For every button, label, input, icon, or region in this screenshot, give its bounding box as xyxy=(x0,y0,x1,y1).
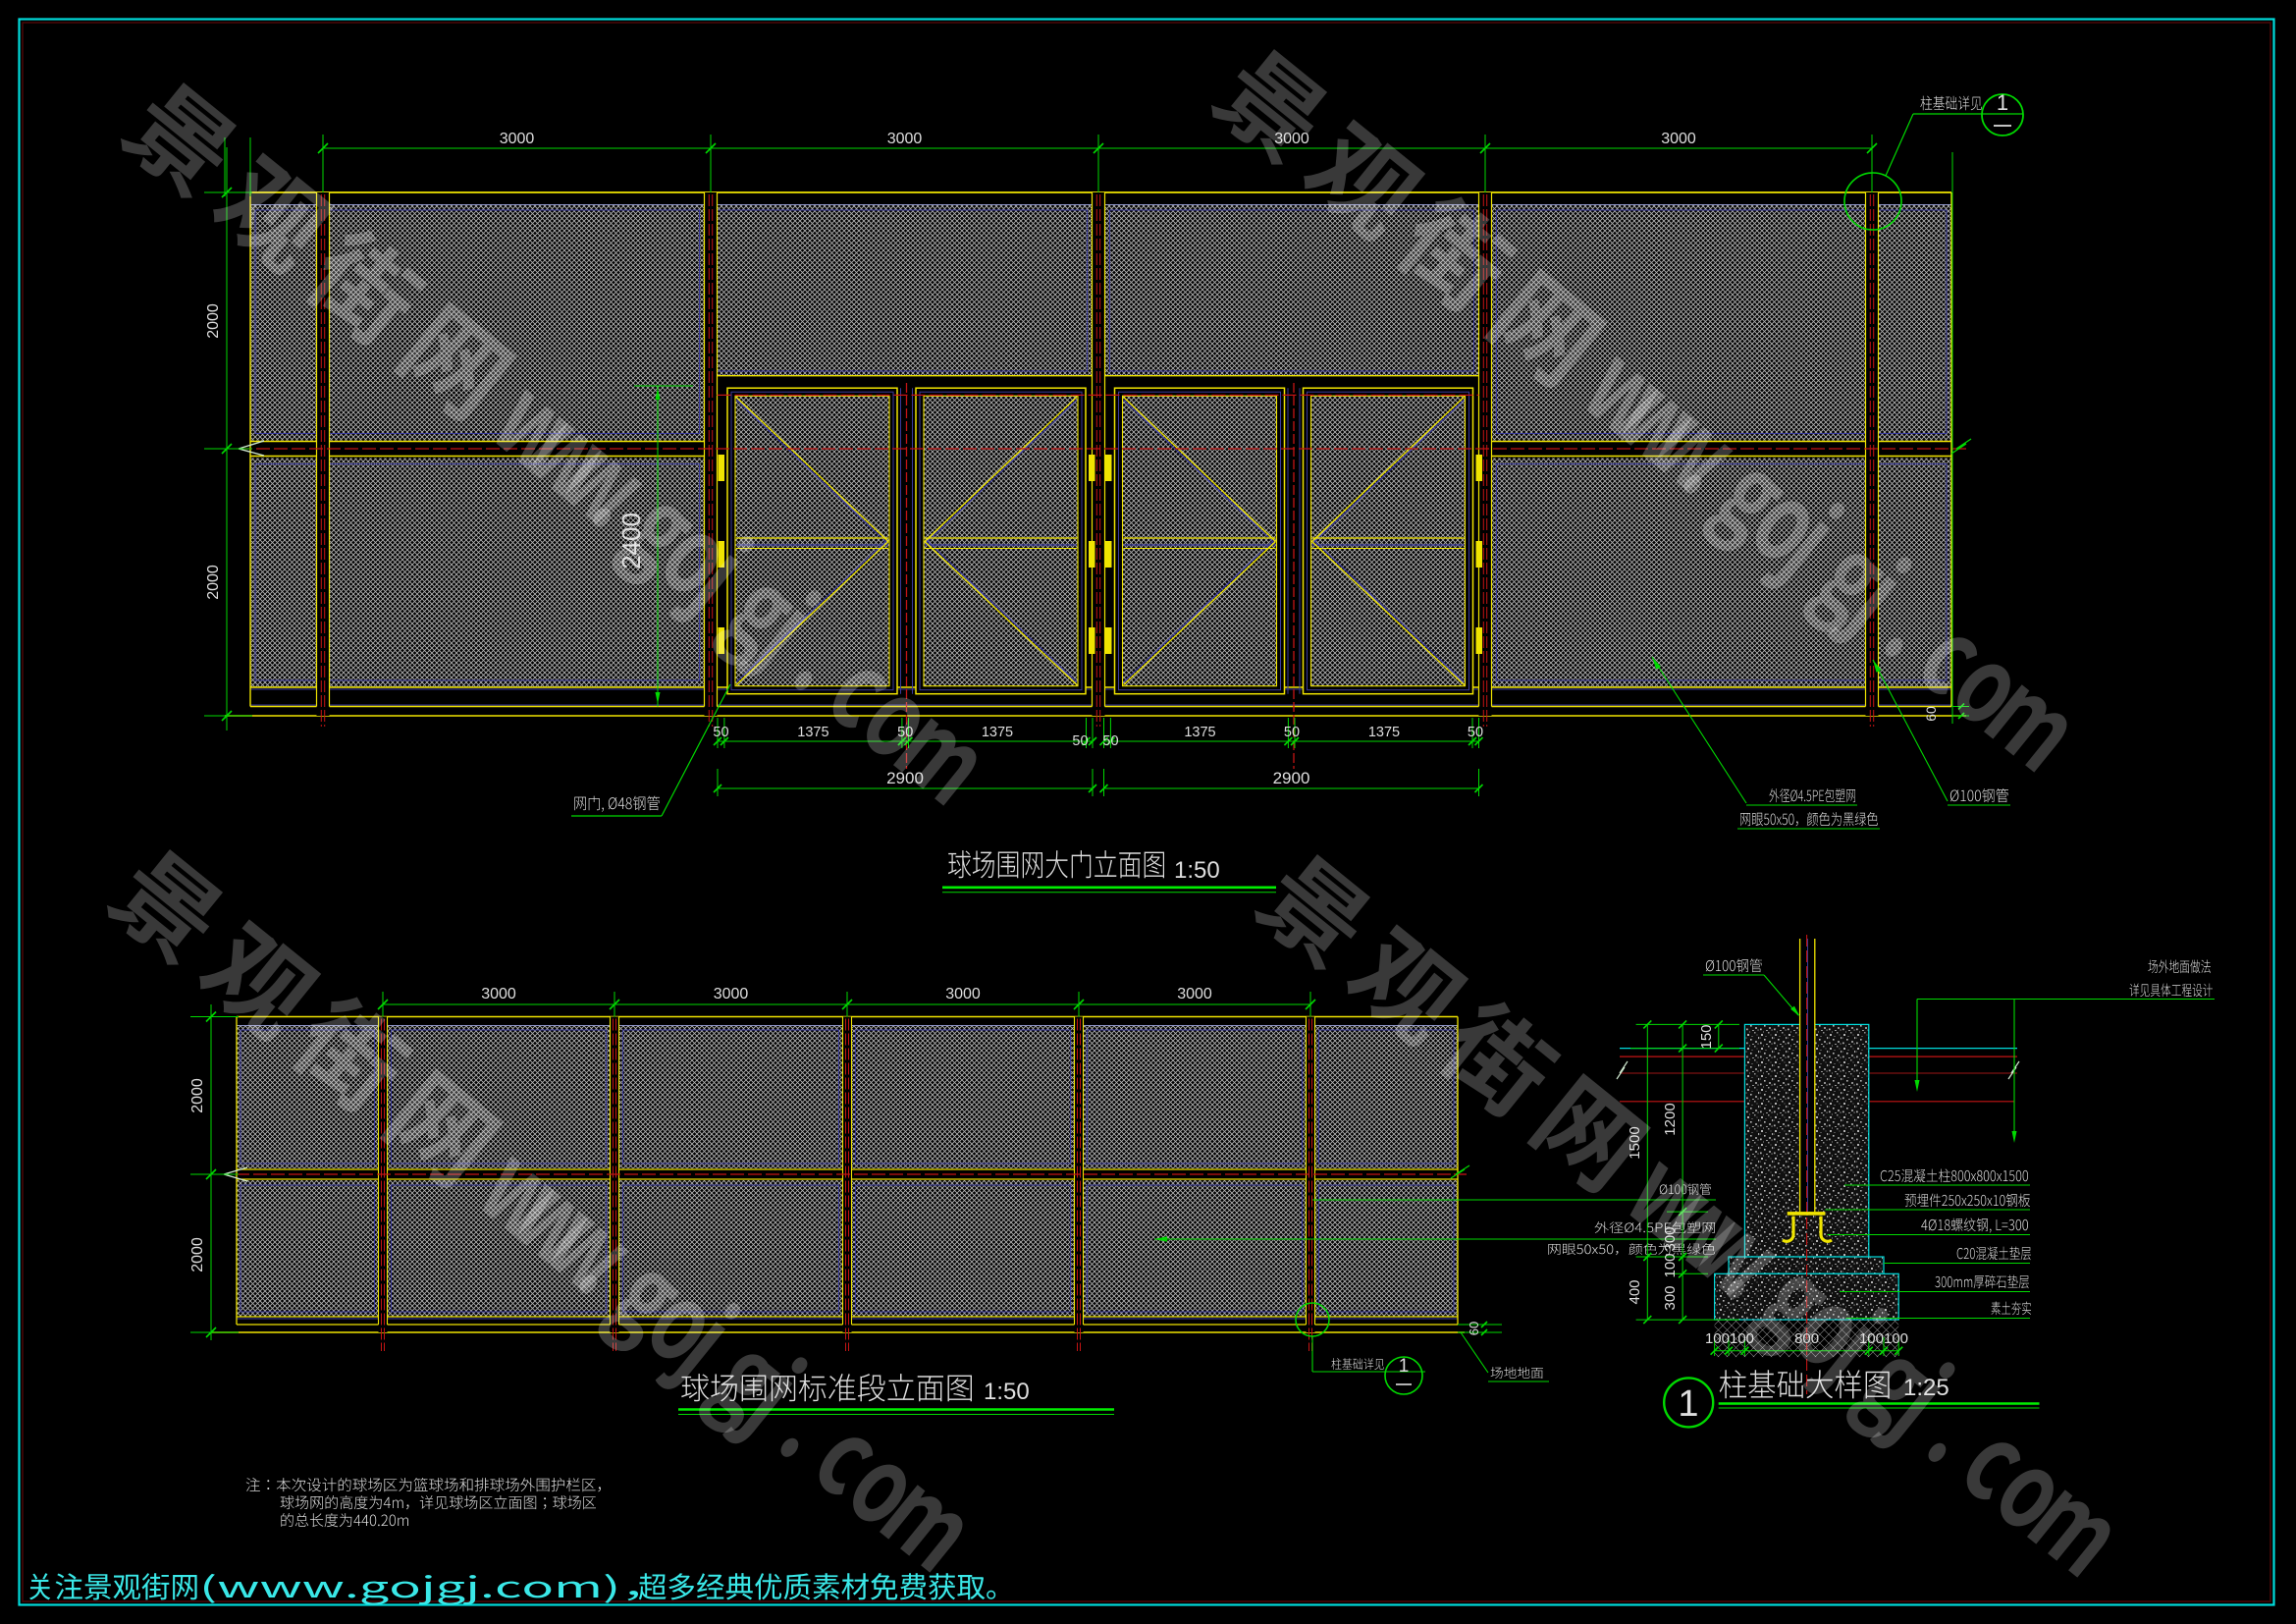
svg-text:1375: 1375 xyxy=(982,725,1013,740)
svg-text:1: 1 xyxy=(1678,1383,1698,1425)
svg-text:1375: 1375 xyxy=(1368,725,1400,740)
svg-text:3000: 3000 xyxy=(481,986,516,1002)
svg-text:60: 60 xyxy=(1923,706,1939,722)
svg-text:3000: 3000 xyxy=(945,986,981,1002)
svg-text:100: 100 xyxy=(1662,1253,1679,1277)
svg-text:1:50: 1:50 xyxy=(1174,857,1220,884)
svg-text:2000: 2000 xyxy=(205,565,222,600)
svg-text:1:50: 1:50 xyxy=(984,1379,1030,1405)
svg-text:3000: 3000 xyxy=(887,131,923,147)
svg-text:3000: 3000 xyxy=(1177,986,1212,1002)
svg-text:2000: 2000 xyxy=(189,1237,206,1272)
svg-text:1375: 1375 xyxy=(1184,725,1215,740)
svg-text:300: 300 xyxy=(1662,1285,1679,1310)
svg-text:1: 1 xyxy=(1399,1356,1410,1377)
svg-text:60: 60 xyxy=(1467,1322,1481,1335)
svg-text:3000: 3000 xyxy=(1661,131,1696,147)
svg-text:150: 150 xyxy=(1698,1024,1715,1049)
svg-text:400: 400 xyxy=(1627,1279,1643,1304)
svg-text:50: 50 xyxy=(1102,733,1118,749)
svg-text:3000: 3000 xyxy=(714,986,749,1002)
svg-text:1200: 1200 xyxy=(1662,1103,1679,1135)
svg-text:50: 50 xyxy=(1284,725,1300,740)
svg-text:50: 50 xyxy=(1468,725,1483,740)
svg-text:50: 50 xyxy=(1072,733,1088,749)
svg-text:2000: 2000 xyxy=(205,303,222,339)
svg-text:3000: 3000 xyxy=(500,131,535,147)
svg-text:1375: 1375 xyxy=(797,725,828,740)
svg-text:1: 1 xyxy=(1997,90,2008,115)
svg-text:50: 50 xyxy=(713,725,728,740)
svg-text:2900: 2900 xyxy=(1273,769,1310,787)
svg-text:2000: 2000 xyxy=(189,1078,206,1113)
